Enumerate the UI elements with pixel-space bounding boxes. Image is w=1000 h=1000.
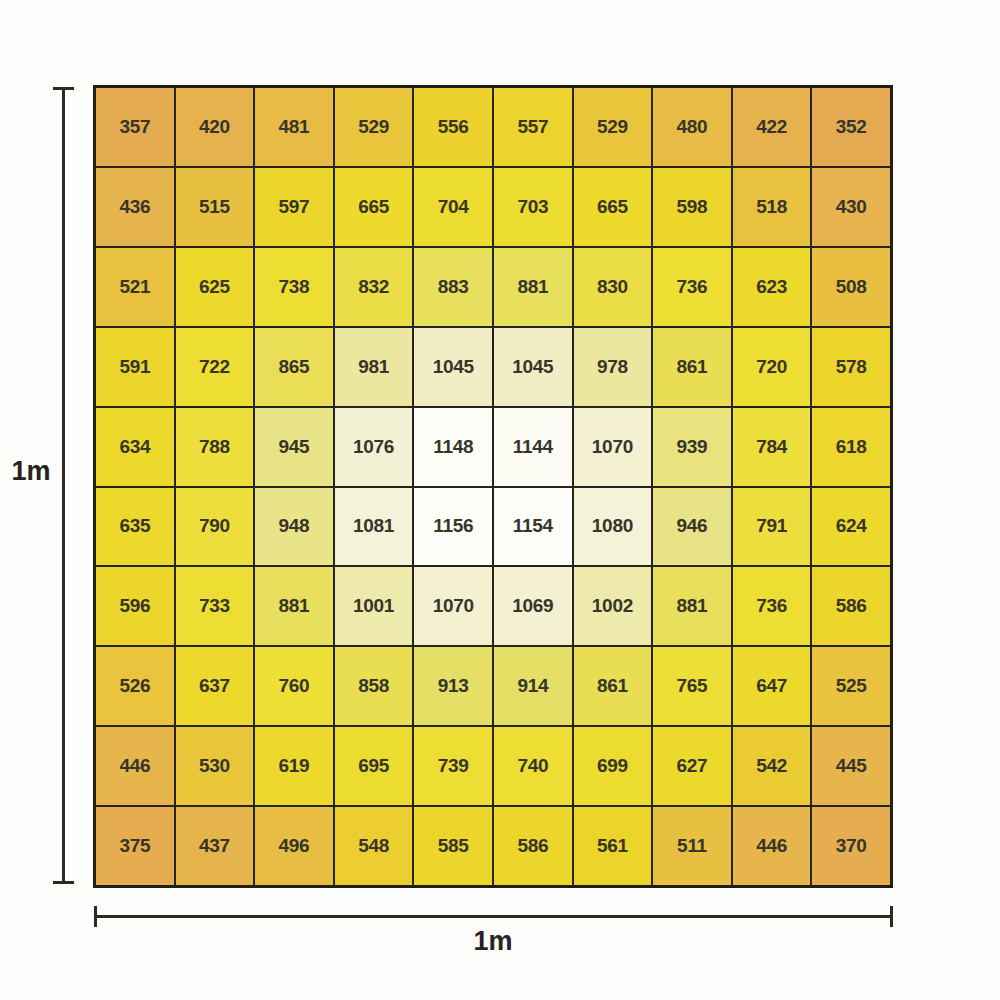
heatmap-cell: 352 (812, 88, 890, 166)
heatmap-cell: 591 (96, 328, 174, 406)
horizontal-dimension-line (94, 915, 893, 918)
heatmap-cell: 598 (653, 168, 731, 246)
heatmap-cell: 739 (414, 727, 492, 805)
heatmap-cell: 788 (176, 408, 254, 486)
heatmap-cell: 530 (176, 727, 254, 805)
heatmap-cell: 436 (96, 168, 174, 246)
heatmap-cell: 722 (176, 328, 254, 406)
heatmap-cell: 736 (653, 248, 731, 326)
heatmap-cell: 765 (653, 647, 731, 725)
bottom-dimension-label: 1m (443, 926, 543, 957)
heatmap-cell: 740 (494, 727, 572, 805)
heatmap-cell: 865 (255, 328, 333, 406)
heatmap-cell: 861 (653, 328, 731, 406)
heatmap-cell: 578 (812, 328, 890, 406)
heatmap-cell: 1080 (574, 488, 652, 566)
heatmap-cell: 526 (96, 647, 174, 725)
heatmap-cell: 858 (335, 647, 413, 725)
heatmap-cell: 760 (255, 647, 333, 725)
heatmap-cell: 585 (414, 807, 492, 885)
heatmap-cell: 586 (494, 807, 572, 885)
heatmap-cell: 586 (812, 567, 890, 645)
heatmap-cell: 665 (574, 168, 652, 246)
heatmap-cell: 542 (733, 727, 811, 805)
heatmap-cell: 883 (414, 248, 492, 326)
heatmap-cell: 508 (812, 248, 890, 326)
heatmap-cell: 939 (653, 408, 731, 486)
heatmap-cell: 511 (653, 807, 731, 885)
heatmap-cell: 861 (574, 647, 652, 725)
heatmap-cell: 446 (96, 727, 174, 805)
heatmap-cell: 665 (335, 168, 413, 246)
heatmap-cell: 1070 (414, 567, 492, 645)
heatmap-cell: 1045 (414, 328, 492, 406)
heatmap-cell: 1148 (414, 408, 492, 486)
heatmap-cell: 430 (812, 168, 890, 246)
heatmap-cell: 830 (574, 248, 652, 326)
heatmap-cell: 481 (255, 88, 333, 166)
dimension-cap (53, 87, 74, 90)
heatmap-cell: 515 (176, 168, 254, 246)
heatmap-cell: 1070 (574, 408, 652, 486)
heatmap-cell: 437 (176, 807, 254, 885)
dimension-cap (890, 906, 893, 927)
heatmap-cell: 618 (812, 408, 890, 486)
heatmap-cell: 881 (494, 248, 572, 326)
heatmap-cell: 647 (733, 647, 811, 725)
heatmap-cell: 557 (494, 88, 572, 166)
heatmap-cell: 784 (733, 408, 811, 486)
dimension-cap (94, 906, 97, 927)
heatmap-cell: 446 (733, 807, 811, 885)
heatmap-cell: 948 (255, 488, 333, 566)
heatmap-cell: 496 (255, 807, 333, 885)
heatmap-cell: 548 (335, 807, 413, 885)
heatmap-cell: 521 (96, 248, 174, 326)
ppfd-heatmap-grid: 3574204815295565575294804223524365155976… (93, 85, 893, 888)
heatmap-cell: 634 (96, 408, 174, 486)
heatmap-cell: 1001 (335, 567, 413, 645)
heatmap-cell: 1156 (414, 488, 492, 566)
heatmap-cell: 518 (733, 168, 811, 246)
heatmap-cell: 1144 (494, 408, 572, 486)
heatmap-cell: 1069 (494, 567, 572, 645)
heatmap-cell: 480 (653, 88, 731, 166)
heatmap-cell: 881 (255, 567, 333, 645)
heatmap-cell: 420 (176, 88, 254, 166)
heatmap-cell: 733 (176, 567, 254, 645)
heatmap-cell: 422 (733, 88, 811, 166)
heatmap-cell: 981 (335, 328, 413, 406)
heatmap-cell: 375 (96, 807, 174, 885)
heatmap-cell: 790 (176, 488, 254, 566)
heatmap-cell: 913 (414, 647, 492, 725)
heatmap-cell: 619 (255, 727, 333, 805)
heatmap-cell: 699 (574, 727, 652, 805)
heatmap-cell: 978 (574, 328, 652, 406)
heatmap-cell: 525 (812, 647, 890, 725)
left-dimension-label: 1m (8, 456, 54, 487)
heatmap-cell: 637 (176, 647, 254, 725)
heatmap-cell: 1076 (335, 408, 413, 486)
heatmap-cell: 946 (653, 488, 731, 566)
heatmap-cell: 738 (255, 248, 333, 326)
light-footprint-figure: 1m 3574204815295565575294804223524365155… (0, 0, 1000, 1000)
heatmap-cell: 635 (96, 488, 174, 566)
heatmap-cell: 704 (414, 168, 492, 246)
vertical-dimension-line (62, 87, 65, 884)
heatmap-cell: 736 (733, 567, 811, 645)
heatmap-cell: 945 (255, 408, 333, 486)
heatmap-cell: 370 (812, 807, 890, 885)
heatmap-cell: 627 (653, 727, 731, 805)
heatmap-cell: 832 (335, 248, 413, 326)
heatmap-cell: 561 (574, 807, 652, 885)
heatmap-cell: 556 (414, 88, 492, 166)
heatmap-cell: 1045 (494, 328, 572, 406)
heatmap-cell: 597 (255, 168, 333, 246)
heatmap-cell: 529 (335, 88, 413, 166)
heatmap-cell: 881 (653, 567, 731, 645)
heatmap-cell: 1081 (335, 488, 413, 566)
dimension-cap (53, 881, 74, 884)
heatmap-cell: 914 (494, 647, 572, 725)
heatmap-cell: 624 (812, 488, 890, 566)
heatmap-cell: 623 (733, 248, 811, 326)
heatmap-cell: 695 (335, 727, 413, 805)
heatmap-cell: 445 (812, 727, 890, 805)
heatmap-cell: 625 (176, 248, 254, 326)
heatmap-cell: 720 (733, 328, 811, 406)
heatmap-cell: 596 (96, 567, 174, 645)
heatmap-cell: 791 (733, 488, 811, 566)
heatmap-cell: 357 (96, 88, 174, 166)
heatmap-cell: 703 (494, 168, 572, 246)
heatmap-cell: 1154 (494, 488, 572, 566)
heatmap-cell: 529 (574, 88, 652, 166)
heatmap-cell: 1002 (574, 567, 652, 645)
